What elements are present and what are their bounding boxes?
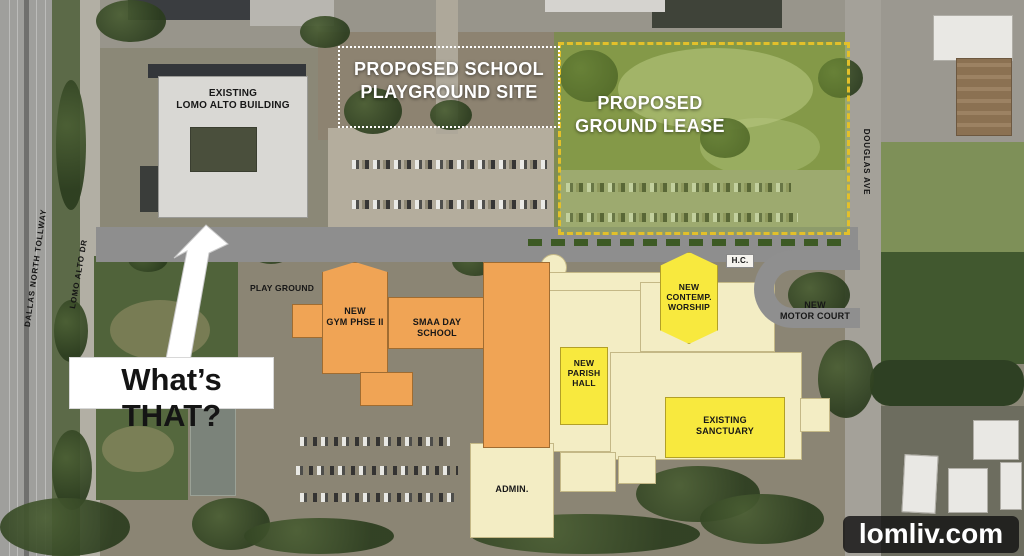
parked-cars-row <box>300 437 450 446</box>
cream-south-tab <box>618 456 656 484</box>
new-motor-court-label: NEW MOTOR COURT <box>770 300 860 322</box>
proposed-playground-label: PROPOSED SCHOOL PLAYGROUND SITE <box>348 58 550 103</box>
aerial-house <box>1000 462 1022 510</box>
parked-cars-row <box>352 200 547 209</box>
hedge-row <box>528 239 850 246</box>
aerial-top-tree-building <box>652 0 782 28</box>
aerial-east-lawn <box>881 142 1024 252</box>
douglas-ave-label: DOUGLAS AVE <box>860 124 872 200</box>
cream-south-tab <box>560 452 616 492</box>
aerial-house <box>973 420 1019 460</box>
tree <box>56 80 86 210</box>
parked-cars-row <box>300 493 458 502</box>
gym-south-extension <box>360 372 413 406</box>
tollway-lane-line <box>45 0 46 556</box>
tree <box>96 0 166 42</box>
tree <box>0 498 130 556</box>
tree <box>244 518 394 554</box>
tree <box>300 16 350 48</box>
admin-label: ADMIN. <box>472 484 552 495</box>
aerial-ne-white-building <box>933 15 1013 61</box>
tollway-lane-line <box>17 0 18 556</box>
new-gym-label: NEW GYM PHSE II <box>318 306 392 328</box>
annotation-arrow <box>152 222 232 370</box>
play-ground-label: PLAY GROUND <box>240 283 324 293</box>
smaa-day-school-label: SMAA DAY SCHOOL <box>392 317 482 339</box>
site-plan-map: PROPOSED GROUND LEASE PROPOSED SCHOOL PL… <box>0 0 1024 556</box>
proposed-ground-lease-area <box>558 42 850 235</box>
existing-sanctuary-label: EXISTING SANCTUARY <box>670 415 780 437</box>
aerial-east-tree-band <box>870 360 1024 406</box>
parked-cars-row <box>352 160 547 169</box>
lomo-alto-courtyard <box>190 127 257 172</box>
aerial-house <box>902 454 939 514</box>
tollway-lane-line <box>9 0 10 556</box>
new-parish-hall-label: NEW PARISH HALL <box>560 358 608 389</box>
proposed-ground-lease-label: PROPOSED GROUND LEASE <box>560 92 740 137</box>
parked-cars-row <box>296 466 458 475</box>
lomo-alto-building-shadow <box>140 166 158 212</box>
existing-lomo-alto-label: EXISTING LOMO ALTO BUILDING <box>163 88 303 112</box>
aerial-top-white-strip <box>545 0 665 12</box>
new-contemp-worship-label: NEW CONTEMP. WORSHIP <box>658 282 720 313</box>
cream-east-tab <box>800 398 830 432</box>
aerial-east-field <box>881 252 1024 364</box>
tollway-road <box>0 0 52 556</box>
aerial-parking-lot-top <box>328 128 588 240</box>
aerial-house <box>948 468 988 513</box>
tree <box>700 494 824 544</box>
annotation-text: What’s THAT? <box>70 362 273 434</box>
watermark-text: lomliv.com <box>843 518 1019 550</box>
aerial-ne-brown-building <box>956 58 1012 136</box>
hc-label: H.C. <box>726 256 754 266</box>
school-central-column <box>483 262 550 448</box>
